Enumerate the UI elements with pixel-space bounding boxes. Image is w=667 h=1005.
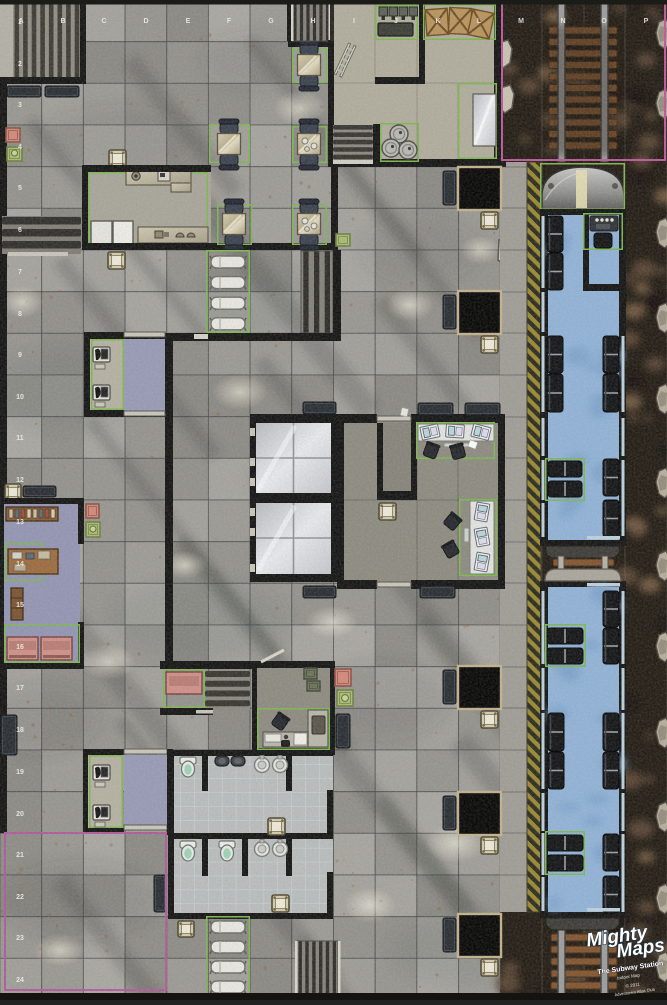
svg-text:I: I xyxy=(353,18,355,25)
svg-text:10: 10 xyxy=(16,394,24,401)
svg-text:18: 18 xyxy=(16,727,24,734)
svg-text:C: C xyxy=(101,18,106,25)
svg-text:3: 3 xyxy=(18,102,22,109)
svg-text:23: 23 xyxy=(16,935,24,942)
svg-text:6: 6 xyxy=(18,227,22,234)
svg-text:L: L xyxy=(477,18,482,25)
svg-text:17: 17 xyxy=(16,685,24,692)
svg-text:B: B xyxy=(60,18,65,25)
svg-text:16: 16 xyxy=(16,644,24,651)
svg-text:G: G xyxy=(268,18,274,25)
svg-text:F: F xyxy=(227,18,232,25)
svg-text:9: 9 xyxy=(18,352,22,359)
svg-text:8: 8 xyxy=(18,311,22,318)
svg-text:1: 1 xyxy=(18,19,22,26)
svg-text:P: P xyxy=(644,18,649,25)
svg-text:N: N xyxy=(560,18,565,25)
svg-text:7: 7 xyxy=(18,269,22,276)
svg-text:E: E xyxy=(186,18,191,25)
svg-text:J: J xyxy=(394,18,398,25)
svg-text:M: M xyxy=(518,18,524,25)
svg-text:22: 22 xyxy=(16,894,24,901)
svg-text:O: O xyxy=(601,18,607,25)
svg-text:K: K xyxy=(435,18,440,25)
svg-text:19: 19 xyxy=(16,769,24,776)
svg-text:4: 4 xyxy=(18,144,22,151)
svg-text:5: 5 xyxy=(18,185,22,192)
svg-text:D: D xyxy=(143,18,148,25)
svg-text:20: 20 xyxy=(16,811,24,818)
svg-text:H: H xyxy=(310,18,315,25)
svg-text:11: 11 xyxy=(16,435,24,442)
svg-text:24: 24 xyxy=(16,977,24,984)
svg-text:12: 12 xyxy=(16,477,24,484)
svg-text:21: 21 xyxy=(16,852,24,859)
svg-text:13: 13 xyxy=(16,519,24,526)
svg-text:14: 14 xyxy=(16,561,24,568)
svg-text:15: 15 xyxy=(16,602,24,609)
svg-text:2: 2 xyxy=(18,61,22,68)
